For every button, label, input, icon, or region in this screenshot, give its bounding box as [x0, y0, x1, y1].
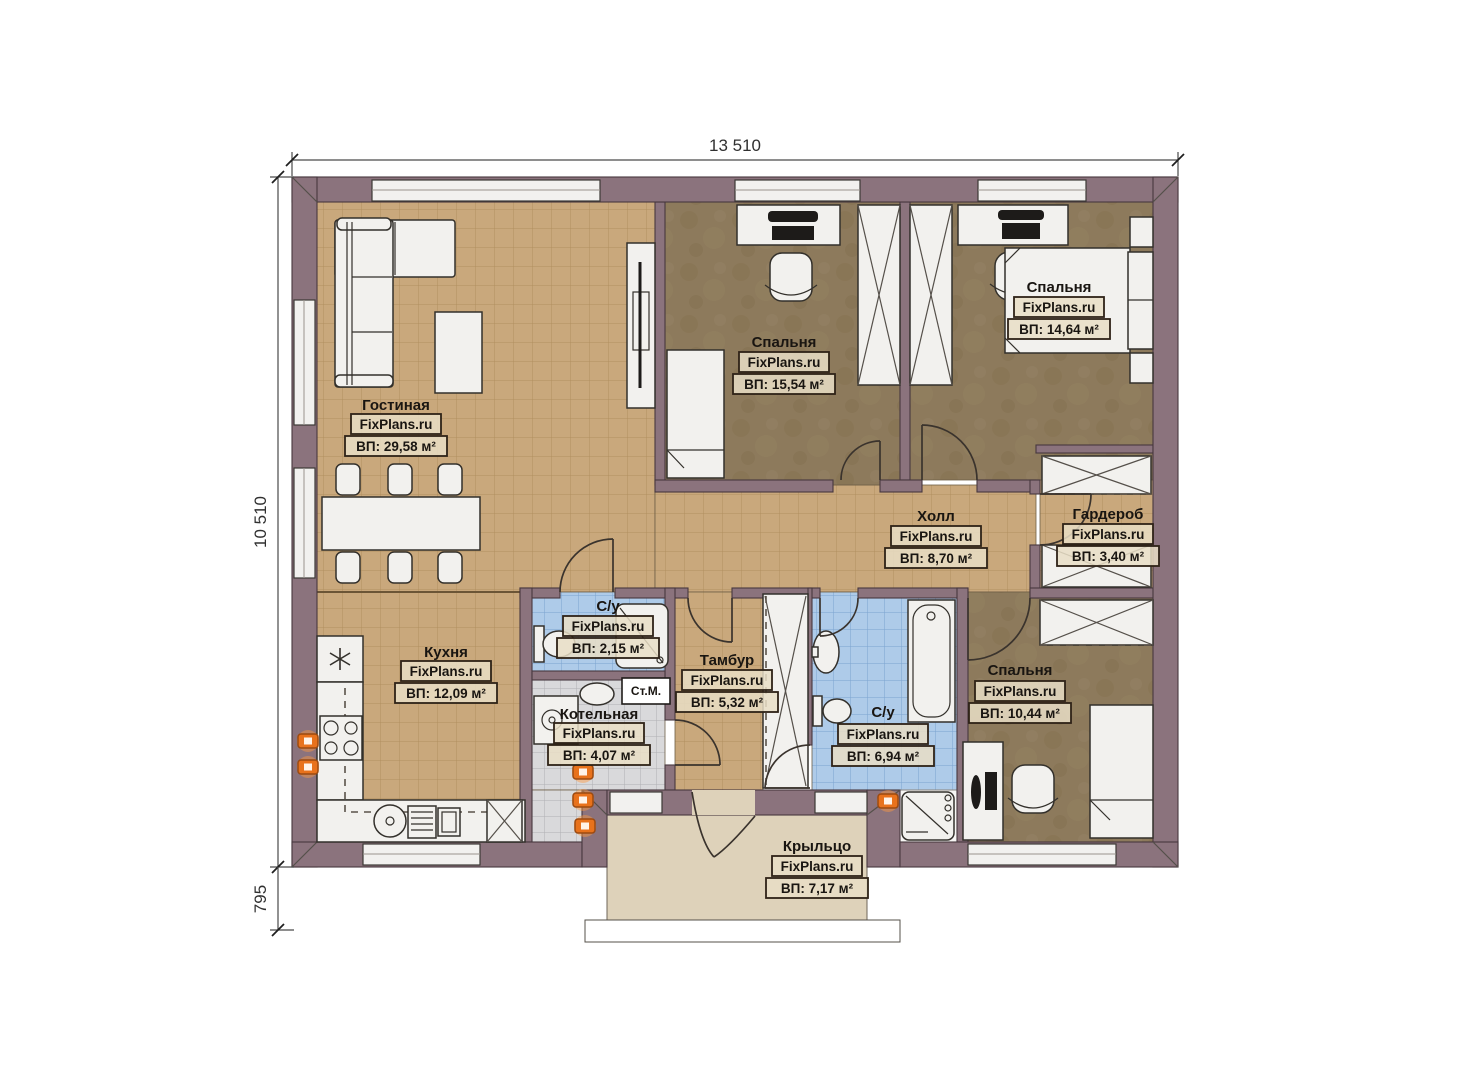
room-name: С/у [596, 598, 620, 615]
room-area: ВП: 29,58 м² [356, 439, 436, 454]
wall [858, 588, 968, 598]
brand-label: FixPlans.ru [691, 673, 764, 688]
gas-connection-icon [877, 790, 899, 812]
computer-icon [772, 226, 814, 240]
brand-label: FixPlans.ru [1072, 527, 1145, 542]
wall [900, 202, 910, 480]
room-area: ВП: 12,09 м² [406, 686, 486, 701]
brand-label: FixPlans.ru [984, 684, 1057, 699]
office-chair [770, 253, 812, 301]
dimension-top: 13 510 [286, 136, 1184, 176]
dining-table [322, 497, 480, 550]
dining-chair [388, 552, 412, 583]
bathtub [908, 600, 955, 722]
wardrobe-cabinet [910, 205, 952, 385]
wardrobe-cabinet [858, 205, 900, 385]
bed [667, 350, 724, 478]
room-area: ВП: 5,32 м² [691, 695, 764, 710]
room-area: ВП: 2,15 м² [572, 641, 645, 656]
printer-icon [998, 210, 1044, 220]
room-name: Холл [917, 508, 955, 525]
wash-basin [812, 631, 839, 673]
wall [655, 202, 665, 485]
brand-label: FixPlans.ru [1023, 300, 1096, 315]
room-area: ВП: 14,64 м² [1019, 322, 1099, 337]
wall [880, 480, 922, 492]
dining-chair [336, 464, 360, 495]
tv-stand [627, 243, 655, 408]
room-name: Спальня [1027, 279, 1092, 296]
dish-rack [408, 806, 460, 838]
floor-plan-canvas: Ст.М. [0, 0, 1473, 1080]
washing-machine: Ст.М. [622, 678, 670, 704]
entrance-opening [692, 790, 755, 815]
wall [615, 588, 688, 598]
base-cabinet [487, 800, 522, 842]
dimension-width-label: 13 510 [709, 136, 761, 155]
wall [977, 480, 1036, 492]
room-name: Крыльцо [783, 838, 851, 855]
room-name: Гостиная [362, 397, 430, 414]
room-area: ВП: 8,70 м² [900, 551, 973, 566]
office-chair [1012, 765, 1054, 813]
window [610, 792, 662, 813]
room-area: ВП: 10,44 м² [980, 706, 1060, 721]
room-area: ВП: 3,40 м² [1072, 549, 1145, 564]
computer-icon [1002, 223, 1040, 239]
bed [1090, 705, 1153, 838]
toilet [813, 696, 851, 726]
wall [1030, 588, 1155, 598]
coffee-table [435, 312, 482, 393]
brand-label: FixPlans.ru [900, 529, 973, 544]
room-name: С/у [871, 704, 895, 721]
dining-chair [438, 464, 462, 495]
room-area: ВП: 7,17 м² [781, 881, 854, 896]
room-name: Кухня [424, 644, 468, 661]
dimension-left: 10 510 [251, 171, 294, 873]
brand-label: FixPlans.ru [748, 355, 821, 370]
dining-chair [438, 552, 462, 583]
room-name: Гардероб [1073, 506, 1144, 523]
gas-connection-icon [574, 815, 596, 837]
room-area: ВП: 4,07 м² [563, 748, 636, 763]
dimension-height-label: 10 510 [251, 496, 270, 548]
gas-connection-icon [297, 730, 319, 752]
dining-chair [388, 464, 412, 495]
wash-basin [580, 683, 614, 705]
room-name: Котельная [560, 706, 639, 723]
dimension-porch: 795 [251, 867, 294, 936]
monitor-icon [985, 772, 997, 810]
wall [1030, 480, 1040, 494]
room-name: Спальня [752, 334, 817, 351]
wall [1036, 445, 1153, 453]
speaker-icon [971, 775, 981, 809]
dining-chair [336, 552, 360, 583]
nightstand [1130, 217, 1153, 247]
floor-plan: Ст.М. [0, 0, 1473, 1080]
room-area: ВП: 15,54 м² [744, 377, 824, 392]
brand-label: FixPlans.ru [563, 726, 636, 741]
stove [320, 716, 362, 760]
washing-machine-label: Ст.М. [631, 684, 661, 698]
nightstand [1130, 353, 1153, 383]
brand-label: FixPlans.ru [847, 727, 920, 742]
room-label-boiler: Котельная FixPlans.ru ВП: 4,07 м² [548, 706, 650, 765]
brand-label: FixPlans.ru [572, 619, 645, 634]
wall [655, 480, 833, 492]
room-area: ВП: 6,94 м² [847, 749, 920, 764]
kitchen-sink [374, 805, 406, 837]
brand-label: FixPlans.ru [781, 859, 854, 874]
dimension-porch-label: 795 [251, 885, 270, 913]
window [815, 792, 867, 813]
room-name: Спальня [988, 662, 1053, 679]
dining-table-set [322, 464, 480, 583]
wall [1153, 177, 1178, 867]
wardrobe-cabinet [1042, 456, 1151, 494]
brand-label: FixPlans.ru [410, 664, 483, 679]
vestibule-closet [763, 594, 808, 788]
porch-step [585, 920, 900, 942]
gas-connection-icon [297, 756, 319, 778]
shower-cabin [902, 792, 954, 840]
room-name: Тамбур [700, 652, 754, 669]
wardrobe-cabinet [1040, 600, 1153, 645]
brand-label: FixPlans.ru [360, 417, 433, 432]
gas-connection-icon [572, 789, 594, 811]
wall [665, 765, 675, 790]
monitor-icon [768, 211, 818, 222]
